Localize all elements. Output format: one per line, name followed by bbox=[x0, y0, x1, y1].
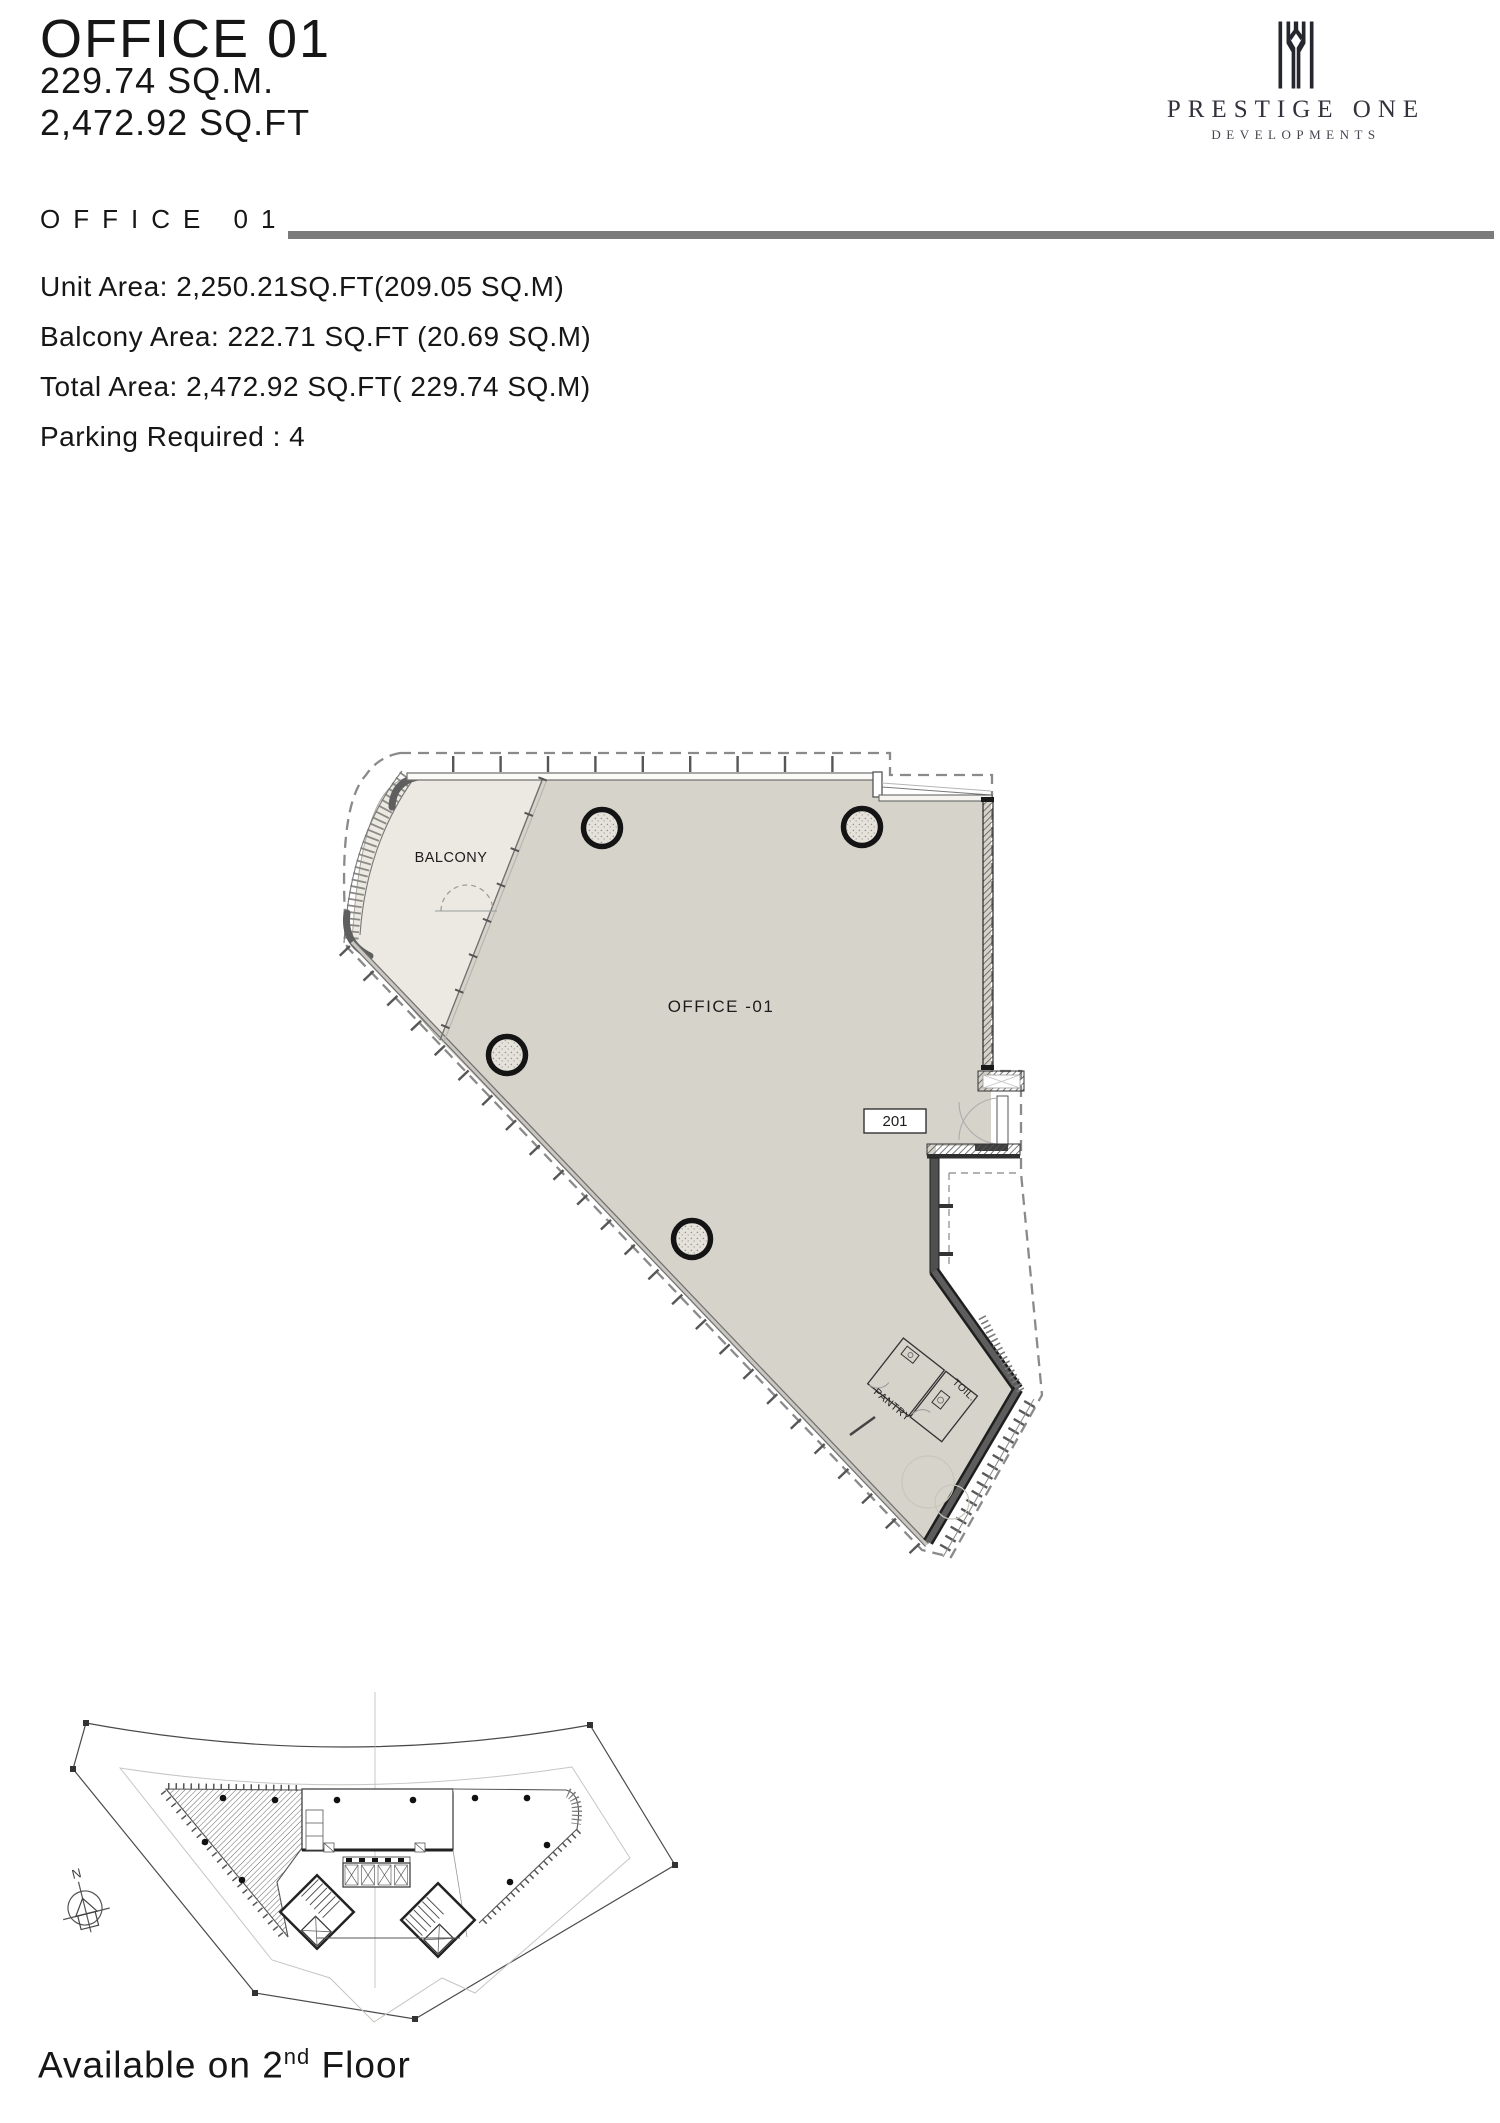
wall-right-hatched bbox=[983, 801, 993, 1067]
availability-note: Available on 2nd Floor bbox=[38, 2044, 411, 2086]
unit-floor-plan: BALCONY OFFICE -01 201 PANTRY TOIL. bbox=[330, 745, 1120, 1575]
wall-step-dark-band bbox=[927, 1154, 1020, 1159]
wall-right-cap-top bbox=[981, 797, 994, 802]
site-key-plan: N bbox=[30, 1690, 710, 2080]
availability-prefix: Available on 2 bbox=[38, 2044, 284, 2085]
column bbox=[674, 1221, 711, 1258]
availability-ordinal: nd bbox=[284, 2044, 310, 2069]
north-label: N bbox=[70, 1865, 83, 1882]
balcony-label: BALCONY bbox=[415, 850, 488, 866]
wall-right-cap-bottom bbox=[981, 1065, 994, 1070]
lobby-dashed-niche bbox=[949, 1173, 1018, 1269]
logo-subtitle-text: DEVELOPMENTS bbox=[1150, 127, 1442, 143]
right-stair-core bbox=[401, 1883, 475, 1957]
office-label: OFFICE -01 bbox=[668, 997, 775, 1016]
floorplan-brochure-page: OFFICE 01 229.74 SQ.M. 2,472.92 SQ.FT PR… bbox=[0, 0, 1500, 2123]
wall-top-right bbox=[879, 795, 992, 801]
prestige-one-building-mark-icon bbox=[1274, 20, 1318, 90]
north-compass-icon: N bbox=[51, 1860, 114, 1938]
availability-suffix: Floor bbox=[310, 2044, 411, 2085]
column bbox=[844, 809, 881, 846]
unit-details: Unit Area: 2,250.21SQ.FT(209.05 SQ.M) Ba… bbox=[40, 262, 591, 462]
wall-step-hatched bbox=[927, 1144, 1020, 1155]
section-title: OFFICE 01 bbox=[40, 204, 288, 235]
center-room-block bbox=[302, 1789, 453, 1850]
wing-top-ticks bbox=[168, 1786, 300, 1788]
column bbox=[489, 1037, 526, 1074]
canopy-line1 bbox=[882, 783, 991, 791]
parking-line: Parking Required : 4 bbox=[40, 412, 591, 462]
section-rule bbox=[288, 231, 1494, 239]
window-wall-top bbox=[407, 773, 877, 780]
wall-pier bbox=[873, 772, 882, 797]
right-wing-outline bbox=[453, 1789, 579, 1923]
wall-vertical-dark bbox=[930, 1158, 939, 1273]
elevator-bank bbox=[343, 1857, 410, 1887]
unit-area-line: Unit Area: 2,250.21SQ.FT(209.05 SQ.M) bbox=[40, 262, 591, 312]
developer-logo: PRESTIGE ONE DEVELOPMENTS bbox=[1150, 20, 1442, 143]
column bbox=[584, 810, 621, 847]
center-room-toilets bbox=[306, 1810, 323, 1850]
entry-door-leaf bbox=[997, 1096, 1008, 1146]
total-area-sqm: 229.74 SQ.M. bbox=[40, 60, 274, 102]
unit-number-label: 201 bbox=[882, 1113, 907, 1130]
total-area-line: Total Area: 2,472.92 SQ.FT( 229.74 SQ.M) bbox=[40, 362, 591, 412]
balcony-area-line: Balcony Area: 222.71 SQ.FT (20.69 SQ.M) bbox=[40, 312, 591, 362]
total-area-sqft: 2,472.92 SQ.FT bbox=[40, 102, 310, 144]
logo-brand-text: PRESTIGE ONE bbox=[1150, 96, 1442, 124]
canopy-line2 bbox=[882, 787, 991, 795]
